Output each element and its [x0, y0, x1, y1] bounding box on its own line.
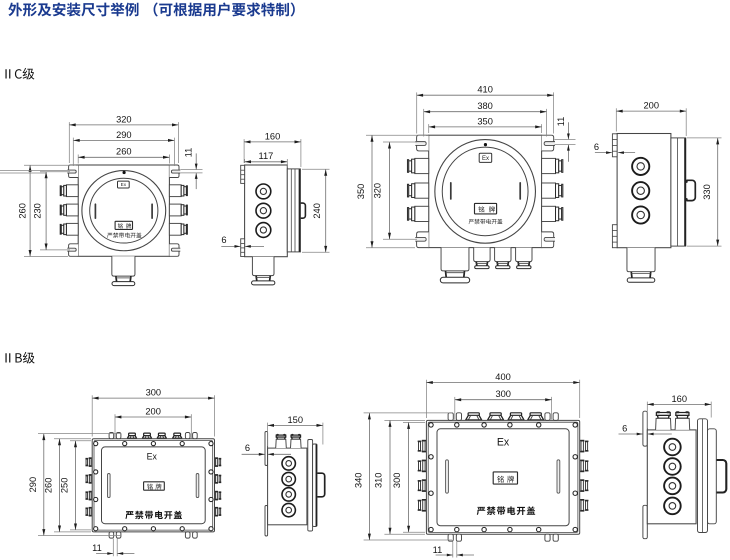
svg-text:11: 11: [92, 543, 102, 553]
svg-text:260: 260: [116, 147, 132, 157]
svg-text:11: 11: [433, 545, 443, 555]
svg-text:Ex: Ex: [497, 436, 510, 448]
svg-text:300: 300: [392, 473, 402, 489]
svg-text:160: 160: [671, 394, 687, 404]
svg-text:380: 380: [477, 101, 493, 111]
svg-text:400: 400: [495, 372, 511, 382]
svg-text:300: 300: [146, 388, 162, 398]
svg-text:320: 320: [372, 183, 382, 199]
svg-text:350: 350: [356, 184, 366, 200]
svg-text:Ex: Ex: [482, 156, 489, 162]
svg-text:6: 6: [221, 235, 226, 245]
svg-text:330: 330: [702, 184, 712, 200]
svg-text:410: 410: [477, 85, 493, 95]
svg-text:6: 6: [594, 142, 599, 152]
svg-text:240: 240: [312, 203, 322, 219]
svg-text:300: 300: [495, 389, 511, 399]
svg-text:260: 260: [17, 203, 27, 219]
svg-text:6: 6: [245, 443, 250, 453]
svg-text:6: 6: [622, 423, 627, 433]
svg-text:290: 290: [28, 477, 38, 493]
svg-text:350: 350: [477, 116, 493, 126]
svg-text:160: 160: [265, 131, 281, 141]
svg-text:117: 117: [259, 151, 274, 161]
svg-text:250: 250: [60, 478, 70, 494]
svg-text:Ex: Ex: [147, 451, 158, 461]
svg-text:310: 310: [373, 473, 383, 489]
svg-text:320: 320: [116, 114, 132, 124]
svg-text:340: 340: [353, 473, 363, 489]
svg-text:200: 200: [145, 406, 161, 416]
svg-text:11: 11: [556, 117, 566, 127]
svg-text:11: 11: [184, 148, 194, 158]
svg-text:260: 260: [44, 478, 54, 494]
svg-text:150: 150: [287, 415, 303, 425]
svg-text:200: 200: [643, 101, 659, 111]
svg-text:Ex: Ex: [121, 182, 127, 187]
svg-text:230: 230: [33, 203, 43, 219]
svg-text:290: 290: [116, 130, 132, 140]
